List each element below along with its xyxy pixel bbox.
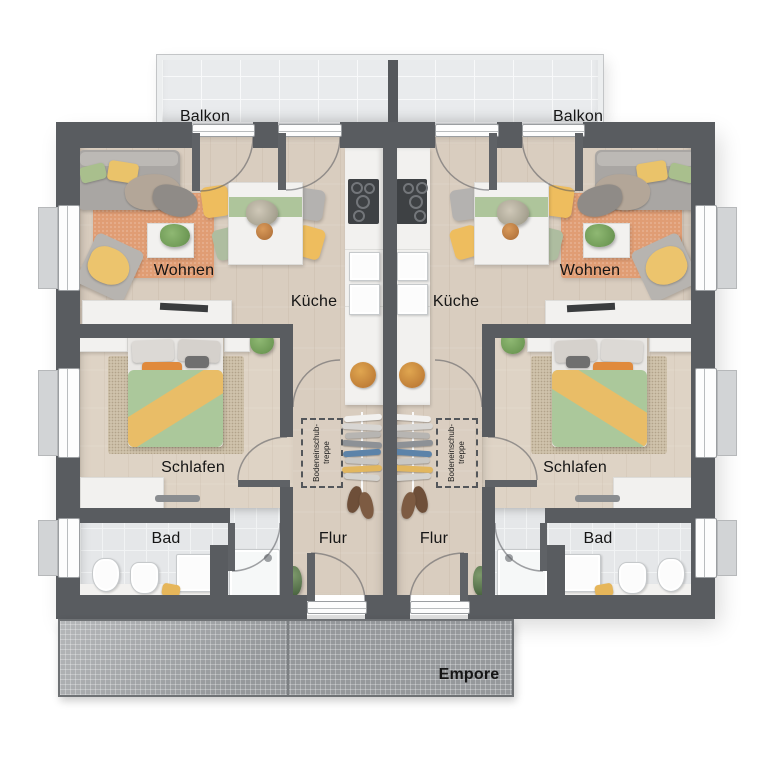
cooktop-right xyxy=(396,179,427,224)
bidet-right xyxy=(618,562,647,594)
bench-left xyxy=(155,495,200,502)
window-sill xyxy=(717,207,737,289)
wall-living-bedroom-right xyxy=(482,324,695,338)
bed-left xyxy=(128,328,223,447)
window-sill xyxy=(38,370,58,456)
room-label-bad-left: Bad xyxy=(151,530,180,548)
dining-chair-left-1 xyxy=(200,184,231,218)
bidet-left xyxy=(130,562,159,594)
room-label-wohnen-right: Wohnen xyxy=(560,262,621,280)
kitchen-sink-left xyxy=(349,252,380,281)
toilet-right xyxy=(657,558,685,592)
window-living-left xyxy=(58,205,80,291)
duvet-fold xyxy=(128,370,223,447)
room-label-kueche-right: Küche xyxy=(433,293,479,311)
burner xyxy=(414,210,426,222)
dresser-left xyxy=(80,477,164,509)
loft-stairs-outline-left: Bodeneinschub- treppe xyxy=(301,418,343,488)
window-bedroom-left xyxy=(58,368,80,458)
balcony-door-living-left xyxy=(192,124,255,137)
window-living-right xyxy=(695,205,717,291)
burner xyxy=(353,210,365,222)
room-label-flur-left: Flur xyxy=(319,530,347,548)
kitchen-sink-right xyxy=(397,252,428,281)
decor-vase-right xyxy=(399,362,425,388)
empore-divider xyxy=(287,621,289,695)
window-sill xyxy=(38,520,58,576)
burner xyxy=(364,183,375,194)
window-bath-right xyxy=(695,518,717,578)
duvet-fold xyxy=(552,370,647,447)
bed-right xyxy=(552,328,647,447)
bed-duvet xyxy=(552,370,647,447)
entrance-threshold-left xyxy=(307,601,367,614)
loft-stairs-note-right: Bodeneinschub- treppe xyxy=(447,424,467,482)
shower-head xyxy=(505,554,513,562)
wall-bedroom-hall-right-upper xyxy=(482,324,495,437)
bed-pillow xyxy=(600,339,643,363)
room-label-flur-right: Flur xyxy=(420,530,448,548)
wall-top-pier-left xyxy=(253,122,278,148)
room-label-kueche-left: Küche xyxy=(291,293,337,311)
balcony-divider-wall xyxy=(388,60,398,123)
wall-bedroom-hall-left-lower xyxy=(280,487,293,619)
room-label-bad-right: Bad xyxy=(583,530,612,548)
bed-pillow-gray xyxy=(185,356,209,368)
window-sill xyxy=(38,207,58,289)
kitchen-sink-left-2 xyxy=(349,284,380,315)
wall-bath-stub-left xyxy=(210,545,228,595)
room-label-schlafen-right: Schlafen xyxy=(543,459,607,477)
table-bowl-right xyxy=(502,223,519,240)
loft-stairs-note-left: Bodeneinschub- treppe xyxy=(312,424,332,482)
empore-gallery: Empore xyxy=(58,619,514,697)
wall-bedroom-bath-left xyxy=(80,508,230,523)
wall-party-center xyxy=(383,122,397,619)
window-bedroom-right xyxy=(695,368,717,458)
coffee-table-plant-left xyxy=(160,224,190,247)
window-sill xyxy=(717,370,737,456)
wall-bottom-left xyxy=(56,595,307,619)
bed-pillow xyxy=(131,339,174,363)
cooktop-left xyxy=(348,179,379,224)
wall-bedroom-hall-right-lower xyxy=(482,487,495,619)
burner xyxy=(416,182,428,194)
wall-living-bedroom-left xyxy=(80,324,293,338)
dresser-right xyxy=(613,477,697,509)
balcony-door-living-right xyxy=(522,124,585,137)
balcony: Balkon Balkon xyxy=(157,55,603,123)
burner xyxy=(356,195,370,209)
bed-duvet xyxy=(128,370,223,447)
shower-head xyxy=(264,554,272,562)
window-sill xyxy=(717,520,737,576)
floor-plan: Balkon Balkon xyxy=(0,0,775,760)
burner xyxy=(409,195,423,209)
table-bouquet-right xyxy=(497,200,529,226)
room-label-wohnen-left: Wohnen xyxy=(154,262,215,280)
wall-bottom-right xyxy=(468,595,715,619)
toilet-left xyxy=(92,558,120,592)
room-label-schlafen-left: Schlafen xyxy=(161,459,225,477)
table-bouquet-left xyxy=(246,200,278,226)
washbasin-left xyxy=(176,554,214,592)
window-bath-left xyxy=(58,518,80,578)
tv-sideboard-left xyxy=(82,300,232,325)
coffee-table-plant-right xyxy=(585,224,615,247)
bed-pillow-gray xyxy=(566,356,590,368)
bench-right xyxy=(575,495,620,502)
burner xyxy=(351,182,363,194)
loft-stairs-outline-right: Bodeneinschub- treppe xyxy=(436,418,478,488)
wall-bedroom-bath-right xyxy=(545,508,695,523)
entrance-threshold-right xyxy=(410,601,470,614)
decor-vase-left xyxy=(350,362,376,388)
room-label-empore: Empore xyxy=(439,666,500,684)
wall-bedroom-hall-left-upper xyxy=(280,324,293,437)
table-bowl-left xyxy=(256,223,273,240)
wall-bath-stub-right xyxy=(547,545,565,595)
balcony-door-kitchen-right xyxy=(435,124,499,137)
kitchen-sink-right-2 xyxy=(397,284,428,315)
tv-sideboard-right xyxy=(545,300,695,325)
balcony-door-kitchen-left xyxy=(278,124,342,137)
wall-top-pier-right xyxy=(497,122,522,148)
burner xyxy=(403,183,414,194)
